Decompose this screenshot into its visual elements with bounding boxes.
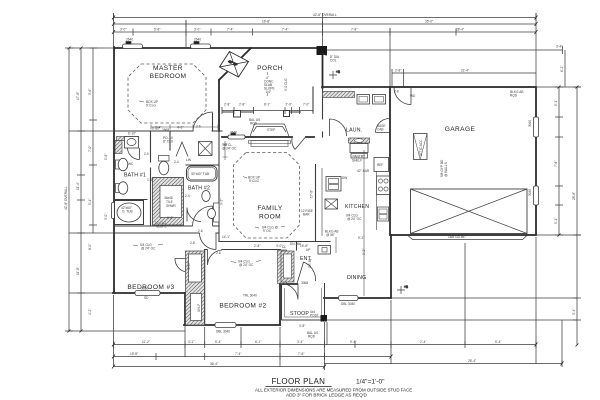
svg-text:SHLF: SHLF (187, 262, 191, 270)
svg-text:9' CLG: 9' CLG (146, 104, 156, 108)
svg-text:@ 24" OC: @ 24" OC (141, 247, 156, 251)
svg-text:2-8: 2-8 (190, 241, 195, 245)
svg-text:2'-8": 2'-8" (254, 244, 260, 248)
svg-text:2668: 2668 (162, 128, 169, 132)
svg-text:3'-0": 3'-0" (194, 28, 200, 32)
svg-text:5'-1": 5'-1" (554, 100, 558, 106)
svg-text:9'-2": 9'-2" (362, 249, 366, 255)
svg-text:5'-4": 5'-4" (88, 199, 92, 205)
svg-text:7'-0": 7'-0" (303, 103, 309, 107)
svg-text:3040: 3040 (528, 120, 532, 127)
svg-text:SHLF: SHLF (197, 304, 201, 312)
svg-text:@ WALLS: @ WALLS (444, 162, 448, 177)
svg-text:14'-1": 14'-1" (222, 235, 230, 239)
svg-text:MASTER: MASTER (153, 65, 183, 72)
svg-text:DINING: DINING (347, 275, 366, 281)
svg-text:9' OC: 9' OC (263, 229, 272, 233)
svg-text:2'-8": 2'-8" (239, 103, 245, 107)
svg-text:3040: 3040 (528, 189, 532, 196)
svg-text:2-4: 2-4 (185, 194, 190, 198)
svg-text:3'-0": 3'-0" (120, 28, 126, 32)
svg-text:9'-0 CLG: 9'-0 CLG (284, 78, 288, 91)
svg-text:28'-4": 28'-4" (468, 359, 476, 363)
svg-text:11'-4": 11'-4" (76, 182, 80, 190)
svg-text:LIN: LIN (186, 158, 192, 162)
svg-text:42" BAR: 42" BAR (357, 169, 370, 173)
svg-text:SHELF: SHELF (352, 159, 362, 163)
svg-text:7'-4": 7'-4" (282, 28, 288, 32)
svg-text:3'-6": 3'-6" (88, 89, 92, 95)
svg-text:UP: UP (306, 248, 310, 252)
svg-text:GARAGE: GARAGE (445, 126, 476, 133)
svg-text:FAMILY: FAMILY (257, 205, 283, 212)
svg-text:1/4"=1'-0": 1/4"=1'-0" (356, 379, 385, 386)
svg-text:ATTIC ACC: ATTIC ACC (419, 139, 423, 156)
svg-text:+B: +B (404, 285, 408, 289)
svg-text:5'-8": 5'-8" (104, 154, 108, 160)
svg-text:16/8 GD 8x7: 16/8 GD 8x7 (448, 235, 466, 239)
svg-text:6'-2": 6'-2" (560, 66, 564, 72)
svg-text:@ 36": @ 36" (326, 233, 335, 237)
svg-text:BAR: BAR (303, 213, 310, 217)
svg-text:BATH #1: BATH #1 (124, 173, 146, 179)
svg-text:17'-8": 17'-8" (310, 190, 314, 198)
svg-text:BEDROOM #2: BEDROOM #2 (219, 303, 266, 310)
svg-text:WD: WD (410, 94, 416, 98)
svg-text:5'-1": 5'-1" (554, 218, 558, 224)
svg-text:2'-8": 2'-8" (224, 103, 230, 107)
svg-text:9' CLG: 9' CLG (249, 179, 259, 183)
svg-text:21'-4": 21'-4" (461, 69, 469, 73)
svg-text:FLOOR PLAN: FLOOR PLAN (272, 377, 326, 386)
svg-text:CL: CL (282, 245, 286, 249)
svg-text:BEDROOM #3: BEDROOM #3 (127, 284, 174, 291)
svg-text:2-0: 2-0 (144, 152, 149, 156)
svg-text:11'-2": 11'-2" (142, 340, 150, 344)
svg-text:28'-4": 28'-4" (456, 28, 464, 32)
svg-text:2640: 2640 (230, 131, 237, 135)
svg-text:1'-6": 1'-6" (147, 178, 153, 182)
svg-text:REF: REF (377, 163, 383, 167)
svg-text:2'-0": 2'-0" (286, 103, 292, 107)
svg-text:11'-8": 11'-8" (76, 267, 80, 275)
svg-text:WC: WC (128, 162, 134, 166)
svg-text:@ 24" OC: @ 24" OC (347, 217, 362, 221)
svg-text:3'-4": 3'-4" (572, 309, 576, 315)
svg-text:BEDROOM: BEDROOM (150, 73, 187, 80)
svg-text:16'-8": 16'-8" (262, 20, 270, 24)
svg-text:TRL 3040: TRL 3040 (243, 294, 257, 298)
svg-text:2-8: 2-8 (394, 90, 399, 94)
svg-text:5'-8": 5'-8" (154, 28, 160, 32)
svg-text:7'-8": 7'-8" (351, 28, 357, 32)
svg-text:17'-8": 17'-8" (76, 92, 80, 100)
svg-text:3'-8": 3'-8" (299, 324, 305, 328)
svg-text:8" CLG: 8" CLG (163, 140, 174, 144)
svg-text:ADD 3" FOR BRICK LEDGE AS REQ': ADD 3" FOR BRICK LEDGE AS REQ'D (286, 392, 368, 397)
svg-text:3068: 3068 (301, 281, 308, 285)
svg-text:PORCH: PORCH (257, 65, 283, 72)
svg-text:DBL 3040: DBL 3040 (216, 330, 230, 334)
svg-text:3050: 3050 (141, 287, 148, 291)
svg-text:2-6: 2-6 (196, 125, 201, 129)
svg-text:8'-1": 8'-1" (264, 103, 270, 107)
svg-text:2-6: 2-6 (216, 251, 221, 255)
svg-text:2'-8": 2'-8" (395, 69, 401, 73)
svg-text:2640: 2640 (194, 38, 201, 42)
svg-text:CAB: CAB (377, 128, 384, 132)
svg-text:7'-4": 7'-4" (227, 28, 233, 32)
svg-text:6'-1": 6'-1" (255, 340, 261, 344)
svg-text:9'-2": 9'-2" (358, 236, 364, 240)
svg-text:G. TUB: G. TUB (122, 210, 133, 214)
svg-text:6'-10": 6'-10" (152, 127, 160, 131)
svg-text:SHWR: SHWR (166, 204, 176, 208)
svg-text:STEP: STEP (267, 128, 275, 132)
svg-text:DN 36#: DN 36# (290, 242, 301, 246)
svg-text:4'-6": 4'-6" (177, 126, 183, 130)
svg-text:POST: POST (310, 314, 319, 318)
svg-text:LAUN.: LAUN. (346, 128, 362, 134)
svg-text:3'-4": 3'-4" (297, 340, 303, 344)
svg-text:36'-4": 36'-4" (210, 362, 218, 366)
svg-text:9'-2": 9'-2" (220, 199, 224, 205)
svg-text:SD: SD (144, 296, 149, 300)
svg-text:RQD: RQD (308, 335, 316, 339)
svg-text:DR 36: DR 36 (308, 259, 312, 268)
svg-text:@ 24" OC: @ 24" OC (239, 263, 254, 267)
svg-text:DW: DW (342, 176, 347, 180)
svg-text:6'-8": 6'-8" (167, 216, 173, 220)
svg-text:DBL 3040: DBL 3040 (341, 302, 355, 306)
svg-text:6'-10": 6'-10" (128, 132, 136, 136)
svg-text:42'-8" OVERALL: 42'-8" OVERALL (64, 186, 68, 210)
svg-text:KITCHEN: KITCHEN (345, 204, 369, 210)
svg-text:7'-4": 7'-4" (235, 352, 241, 356)
svg-text:35'-0": 35'-0" (425, 20, 433, 24)
svg-text:15'-8": 15'-8" (130, 352, 138, 356)
svg-text:2-4: 2-4 (174, 160, 179, 164)
svg-text:7'-0": 7'-0" (88, 146, 92, 152)
svg-text:3'-4": 3'-4" (556, 45, 562, 49)
svg-text:@ 24" OC: @ 24" OC (222, 147, 237, 151)
svg-text:RQD: RQD (250, 122, 258, 126)
svg-text:2'-4": 2'-4" (420, 340, 426, 344)
svg-text:8'-0": 8'-0" (88, 244, 92, 250)
svg-text:RQD: RQD (510, 94, 518, 98)
svg-text:COL: COL (330, 59, 337, 63)
svg-text:3'-0": 3'-0" (104, 214, 108, 220)
svg-text:SLOPE: SLOPE (156, 225, 167, 229)
svg-text:4'-2": 4'-2" (88, 309, 92, 315)
svg-text:+B: +B (336, 70, 340, 74)
svg-text:ROOM: ROOM (259, 214, 281, 221)
svg-text:3'-1": 3'-1" (188, 340, 194, 344)
svg-text:7'-8": 7'-8" (554, 161, 558, 167)
svg-text:30"x60" TUB: 30"x60" TUB (191, 172, 209, 176)
svg-text:2-6: 2-6 (198, 229, 203, 233)
svg-text:5'-4": 5'-4" (495, 340, 501, 344)
svg-text:7'-8": 7'-8" (298, 352, 304, 356)
svg-text:28'-8": 28'-8" (572, 192, 576, 200)
svg-text:STOOP: STOOP (290, 311, 309, 317)
svg-text:5'-4": 5'-4" (215, 340, 221, 344)
svg-text:2640: 2640 (126, 38, 133, 42)
svg-text:42'-8" OVERALL: 42'-8" OVERALL (313, 13, 337, 17)
svg-text:1/4": 1/4" (266, 90, 272, 94)
svg-text:9'-4": 9'-4" (350, 340, 356, 344)
